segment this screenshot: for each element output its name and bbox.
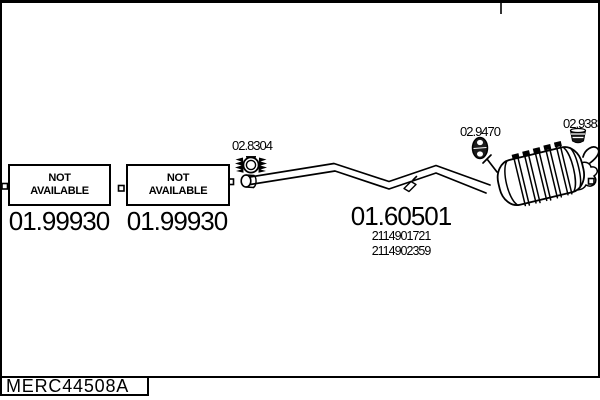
- oem-reference-2: 2114902359: [340, 244, 462, 258]
- drawing-code: MERC44508A: [6, 378, 129, 396]
- muffler-hanger-rod: [483, 155, 497, 172]
- not-available-line1: NOT: [167, 172, 189, 185]
- pipe-inlet-flange: [241, 175, 251, 187]
- not-available-line1: NOT: [48, 172, 70, 185]
- part-number-clamp[interactable]: 02.8304: [227, 139, 277, 153]
- rubber-hanger-icon: [473, 138, 488, 159]
- not-available-box-1: NOT AVAILABLE: [8, 164, 111, 206]
- drawing-code-box: MERC44508A: [0, 378, 149, 396]
- not-available-line2: AVAILABLE: [30, 185, 89, 198]
- part-number-rear-muffler[interactable]: 01.60501: [340, 202, 462, 230]
- oem-reference-1: 2114901721: [340, 229, 462, 243]
- part-number-rubber-hanger[interactable]: 02.9470: [454, 125, 506, 139]
- tail-pipe: [583, 147, 599, 163]
- muffler-drawing: [483, 137, 599, 211]
- exhaust-parts-diagram: NOT AVAILABLE NOT AVAILABLE 01.99930 01.…: [0, 0, 600, 400]
- part-number-bracket-hanger[interactable]: 02.9383: [558, 117, 600, 131]
- not-available-box-2: NOT AVAILABLE: [126, 164, 230, 206]
- not-available-line2: AVAILABLE: [149, 185, 208, 198]
- part-number-front-pipe-2[interactable]: 01.99930: [124, 207, 230, 235]
- part-number-front-pipe-1[interactable]: 01.99930: [6, 207, 112, 235]
- connector-marker-4: [589, 179, 595, 185]
- connector-marker-2: [119, 186, 125, 192]
- clamp-icon: [235, 157, 267, 173]
- exhaust-pipe-drawing: [241, 164, 490, 194]
- connector-marker-1: [2, 184, 8, 190]
